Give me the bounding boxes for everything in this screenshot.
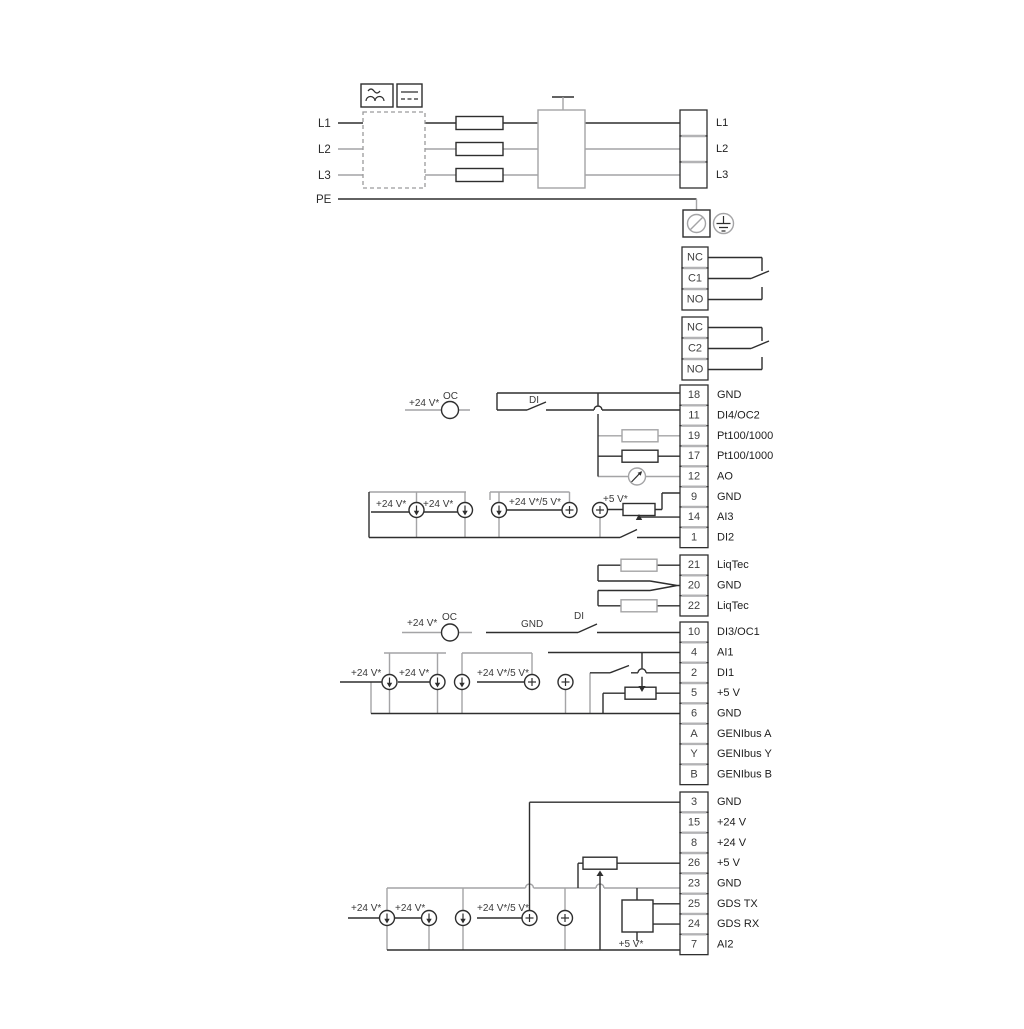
terminal-block-main2: 10DI3/OC14AI12DI15+5 V6GNDAGENIbus AYGEN… bbox=[680, 622, 772, 785]
voltage-source-icon bbox=[525, 675, 540, 690]
terminal-number: A bbox=[690, 728, 698, 740]
terminal-number: 17 bbox=[688, 450, 700, 462]
supply-label: +24 V* bbox=[395, 903, 425, 914]
terminal-number: 18 bbox=[688, 389, 700, 401]
terminal-number: NC bbox=[687, 252, 703, 264]
voltage-source-icon bbox=[558, 911, 573, 926]
wires-gray bbox=[371, 653, 590, 714]
terminal-label: +24 V bbox=[717, 816, 747, 828]
resistor-icon bbox=[622, 430, 658, 442]
terminal-label: +5 V bbox=[717, 687, 741, 699]
resistor-icon bbox=[622, 450, 658, 462]
terminal-label: DI2 bbox=[717, 531, 734, 543]
resistor-icon bbox=[621, 600, 657, 612]
current-source-icon bbox=[382, 675, 397, 690]
relay-contact-icon bbox=[708, 258, 769, 300]
terminal-block-mains: L1L2L3 bbox=[680, 110, 728, 188]
supply-label: +24 V* bbox=[351, 903, 381, 914]
supply-label: +24 V*/5 V* bbox=[477, 903, 529, 914]
supply-label: +24 V* bbox=[423, 499, 453, 510]
terminal-number: 2 bbox=[691, 667, 697, 679]
ac-symbol-box bbox=[361, 84, 393, 107]
terminal-number: 22 bbox=[688, 600, 700, 612]
screw-terminal-icon bbox=[688, 215, 706, 233]
terminal-number: 6 bbox=[691, 707, 697, 719]
terminal-label: L1 bbox=[716, 117, 728, 129]
terminal-number: 8 bbox=[691, 837, 697, 849]
terminal-label: GDS TX bbox=[717, 898, 758, 910]
earth-ground-icon bbox=[714, 214, 734, 234]
fuse-icon bbox=[456, 169, 503, 182]
voltage-source-icon bbox=[522, 911, 537, 926]
terminal-number: NC bbox=[687, 322, 703, 334]
current-source-icon bbox=[456, 911, 471, 926]
wiper-arrow-icon bbox=[597, 871, 604, 877]
terminal-label: GND bbox=[717, 707, 742, 719]
open-collector-icon bbox=[442, 624, 459, 641]
rfi-filter-box bbox=[363, 112, 425, 188]
terminal-number: 21 bbox=[688, 559, 700, 571]
terminal-label: AI1 bbox=[717, 646, 734, 658]
terminal-number: 4 bbox=[691, 646, 697, 658]
terminal-number: 14 bbox=[688, 511, 700, 523]
terminal-label: GND bbox=[717, 877, 742, 889]
voltage-source-icon bbox=[558, 675, 573, 690]
terminal-label: Pt100/1000 bbox=[717, 430, 773, 442]
current-source-icon bbox=[422, 911, 437, 926]
di-label: DI bbox=[574, 611, 584, 622]
terminal-number: 7 bbox=[691, 938, 697, 950]
wires-gray bbox=[405, 410, 680, 477]
current-source-icon bbox=[458, 503, 473, 518]
phase-label-l2: L2 bbox=[318, 144, 331, 156]
terminal-number: C2 bbox=[688, 343, 702, 355]
sensor-row-ai2-section: +24 V* +24 V* +24 V*/5 V* +5 V* bbox=[348, 802, 680, 950]
supply-label: +24 V* bbox=[409, 398, 439, 409]
terminal-label: LiqTec bbox=[717, 600, 749, 612]
terminal-number: 25 bbox=[688, 898, 700, 910]
phase-label-pe: PE bbox=[316, 194, 332, 206]
supply-label: +24 V* bbox=[376, 499, 406, 510]
sensor-row-ai3-section: +24 V* +24 V* +24 V*/5 V* +5 V* bbox=[369, 492, 680, 538]
supply-label: +24 V* bbox=[351, 668, 381, 679]
terminal-number: C1 bbox=[688, 273, 702, 285]
terminal-block-relay1: NCC1NO bbox=[682, 247, 708, 310]
terminal-block-relay2: NCC2NO bbox=[682, 317, 708, 380]
relay-section: NCC1NO NCC2NO bbox=[682, 247, 769, 380]
terminal-label: GND bbox=[717, 389, 742, 401]
supply-label: +24 V*/5 V* bbox=[509, 497, 561, 508]
current-source-icon bbox=[380, 911, 395, 926]
terminal-number: 20 bbox=[688, 579, 700, 591]
fuse-icon bbox=[456, 117, 503, 130]
disconnect-switch-icon bbox=[538, 110, 585, 188]
voltage-source-icon bbox=[562, 503, 577, 518]
terminal-number: 9 bbox=[691, 491, 697, 503]
terminal-label: +5 V bbox=[717, 857, 741, 869]
terminal-number: 10 bbox=[688, 626, 700, 638]
terminal-number: 1 bbox=[691, 531, 697, 543]
terminal-label: L2 bbox=[716, 143, 728, 155]
terminal-number: B bbox=[690, 768, 697, 780]
wires-gray bbox=[338, 97, 697, 210]
current-source-icon bbox=[430, 675, 445, 690]
open-collector-icon bbox=[442, 402, 459, 419]
terminal-block-main3: 3GND15+24 V8+24 V26+5 V23GND25GDS TX24GD… bbox=[680, 792, 760, 955]
terminal-block-main1: 18GND11DI4/OC219Pt100/100017Pt100/100012… bbox=[680, 385, 773, 548]
terminal-label: AI2 bbox=[717, 938, 734, 950]
terminal-label: +24 V bbox=[717, 837, 747, 849]
terminal-label: LiqTec bbox=[717, 559, 749, 571]
terminal-cell bbox=[680, 110, 707, 136]
terminal-label: GND bbox=[717, 491, 742, 503]
terminal-number: 12 bbox=[688, 470, 700, 482]
potentiometer-icon bbox=[583, 857, 617, 869]
sensor-row-ai1-section: +24 V* +24 V* +24 V*/5 V* bbox=[340, 653, 680, 714]
wires-dark bbox=[486, 624, 680, 633]
terminal-number: 26 bbox=[688, 857, 700, 869]
supply-label: +5 V* bbox=[619, 939, 644, 950]
supply-label: +24 V* bbox=[399, 668, 429, 679]
terminal-label: L3 bbox=[716, 169, 728, 181]
dc-symbol-box bbox=[397, 84, 422, 107]
terminal-label: DI1 bbox=[717, 667, 734, 679]
terminal-cell bbox=[680, 162, 707, 188]
mains-section: L1 L2 L3 PE L1L2L3 bbox=[316, 84, 734, 237]
terminal-label: GENIbus B bbox=[717, 768, 772, 780]
terminal-label: DI3/OC1 bbox=[717, 626, 760, 638]
terminal-number: 11 bbox=[688, 409, 699, 421]
terminal-number: 3 bbox=[691, 796, 697, 808]
sensor-box-icon bbox=[622, 900, 653, 932]
wiring-diagram: L1 L2 L3 PE L1L2L3 bbox=[0, 0, 1024, 1024]
digital-input-oc2-section: +24 V* OC DI bbox=[405, 391, 680, 485]
terminal-label: AO bbox=[717, 470, 733, 482]
terminal-label: Pt100/1000 bbox=[717, 450, 773, 462]
oc-label: OC bbox=[442, 612, 457, 623]
terminal-number: NO bbox=[687, 364, 704, 376]
digital-input-oc1-section: +24 V* OC GND DI bbox=[402, 611, 680, 641]
terminal-label: GND bbox=[717, 796, 742, 808]
fuse-icon bbox=[456, 143, 503, 156]
current-source-icon bbox=[455, 675, 470, 690]
terminal-number: 5 bbox=[691, 687, 697, 699]
terminal-number: 15 bbox=[688, 816, 700, 828]
oc-label: OC bbox=[443, 391, 458, 402]
terminal-label: GENIbus Y bbox=[717, 748, 772, 760]
terminal-number: NO bbox=[687, 294, 704, 306]
terminal-label: AI3 bbox=[717, 511, 734, 523]
liqtec-section bbox=[598, 559, 680, 612]
terminal-number: Y bbox=[690, 748, 698, 760]
phase-label-l3: L3 bbox=[318, 170, 331, 182]
gnd-label: GND bbox=[521, 619, 543, 630]
terminal-cell bbox=[680, 136, 707, 162]
terminal-number: 24 bbox=[688, 918, 700, 930]
terminal-block-liqtec: 21LiqTec20GND22LiqTec bbox=[680, 555, 749, 616]
di-label: DI bbox=[529, 395, 539, 406]
terminal-number: 19 bbox=[688, 430, 700, 442]
potentiometer-icon bbox=[623, 504, 655, 516]
voltage-source-icon bbox=[593, 503, 608, 518]
resistor-icon bbox=[621, 559, 657, 571]
terminal-label: GENIbus A bbox=[717, 728, 772, 740]
current-source-icon bbox=[492, 503, 507, 518]
phase-label-l1: L1 bbox=[318, 118, 331, 130]
relay-contact-icon bbox=[708, 328, 769, 370]
analog-output-meter-icon bbox=[629, 468, 646, 485]
supply-label: +24 V*/5 V* bbox=[477, 668, 529, 679]
terminal-label: GDS RX bbox=[717, 918, 760, 930]
current-source-icon bbox=[409, 503, 424, 518]
terminal-label: DI4/OC2 bbox=[717, 409, 760, 421]
supply-label: +24 V* bbox=[407, 618, 437, 629]
terminal-number: 23 bbox=[688, 877, 700, 889]
terminal-label: GND bbox=[717, 579, 742, 591]
